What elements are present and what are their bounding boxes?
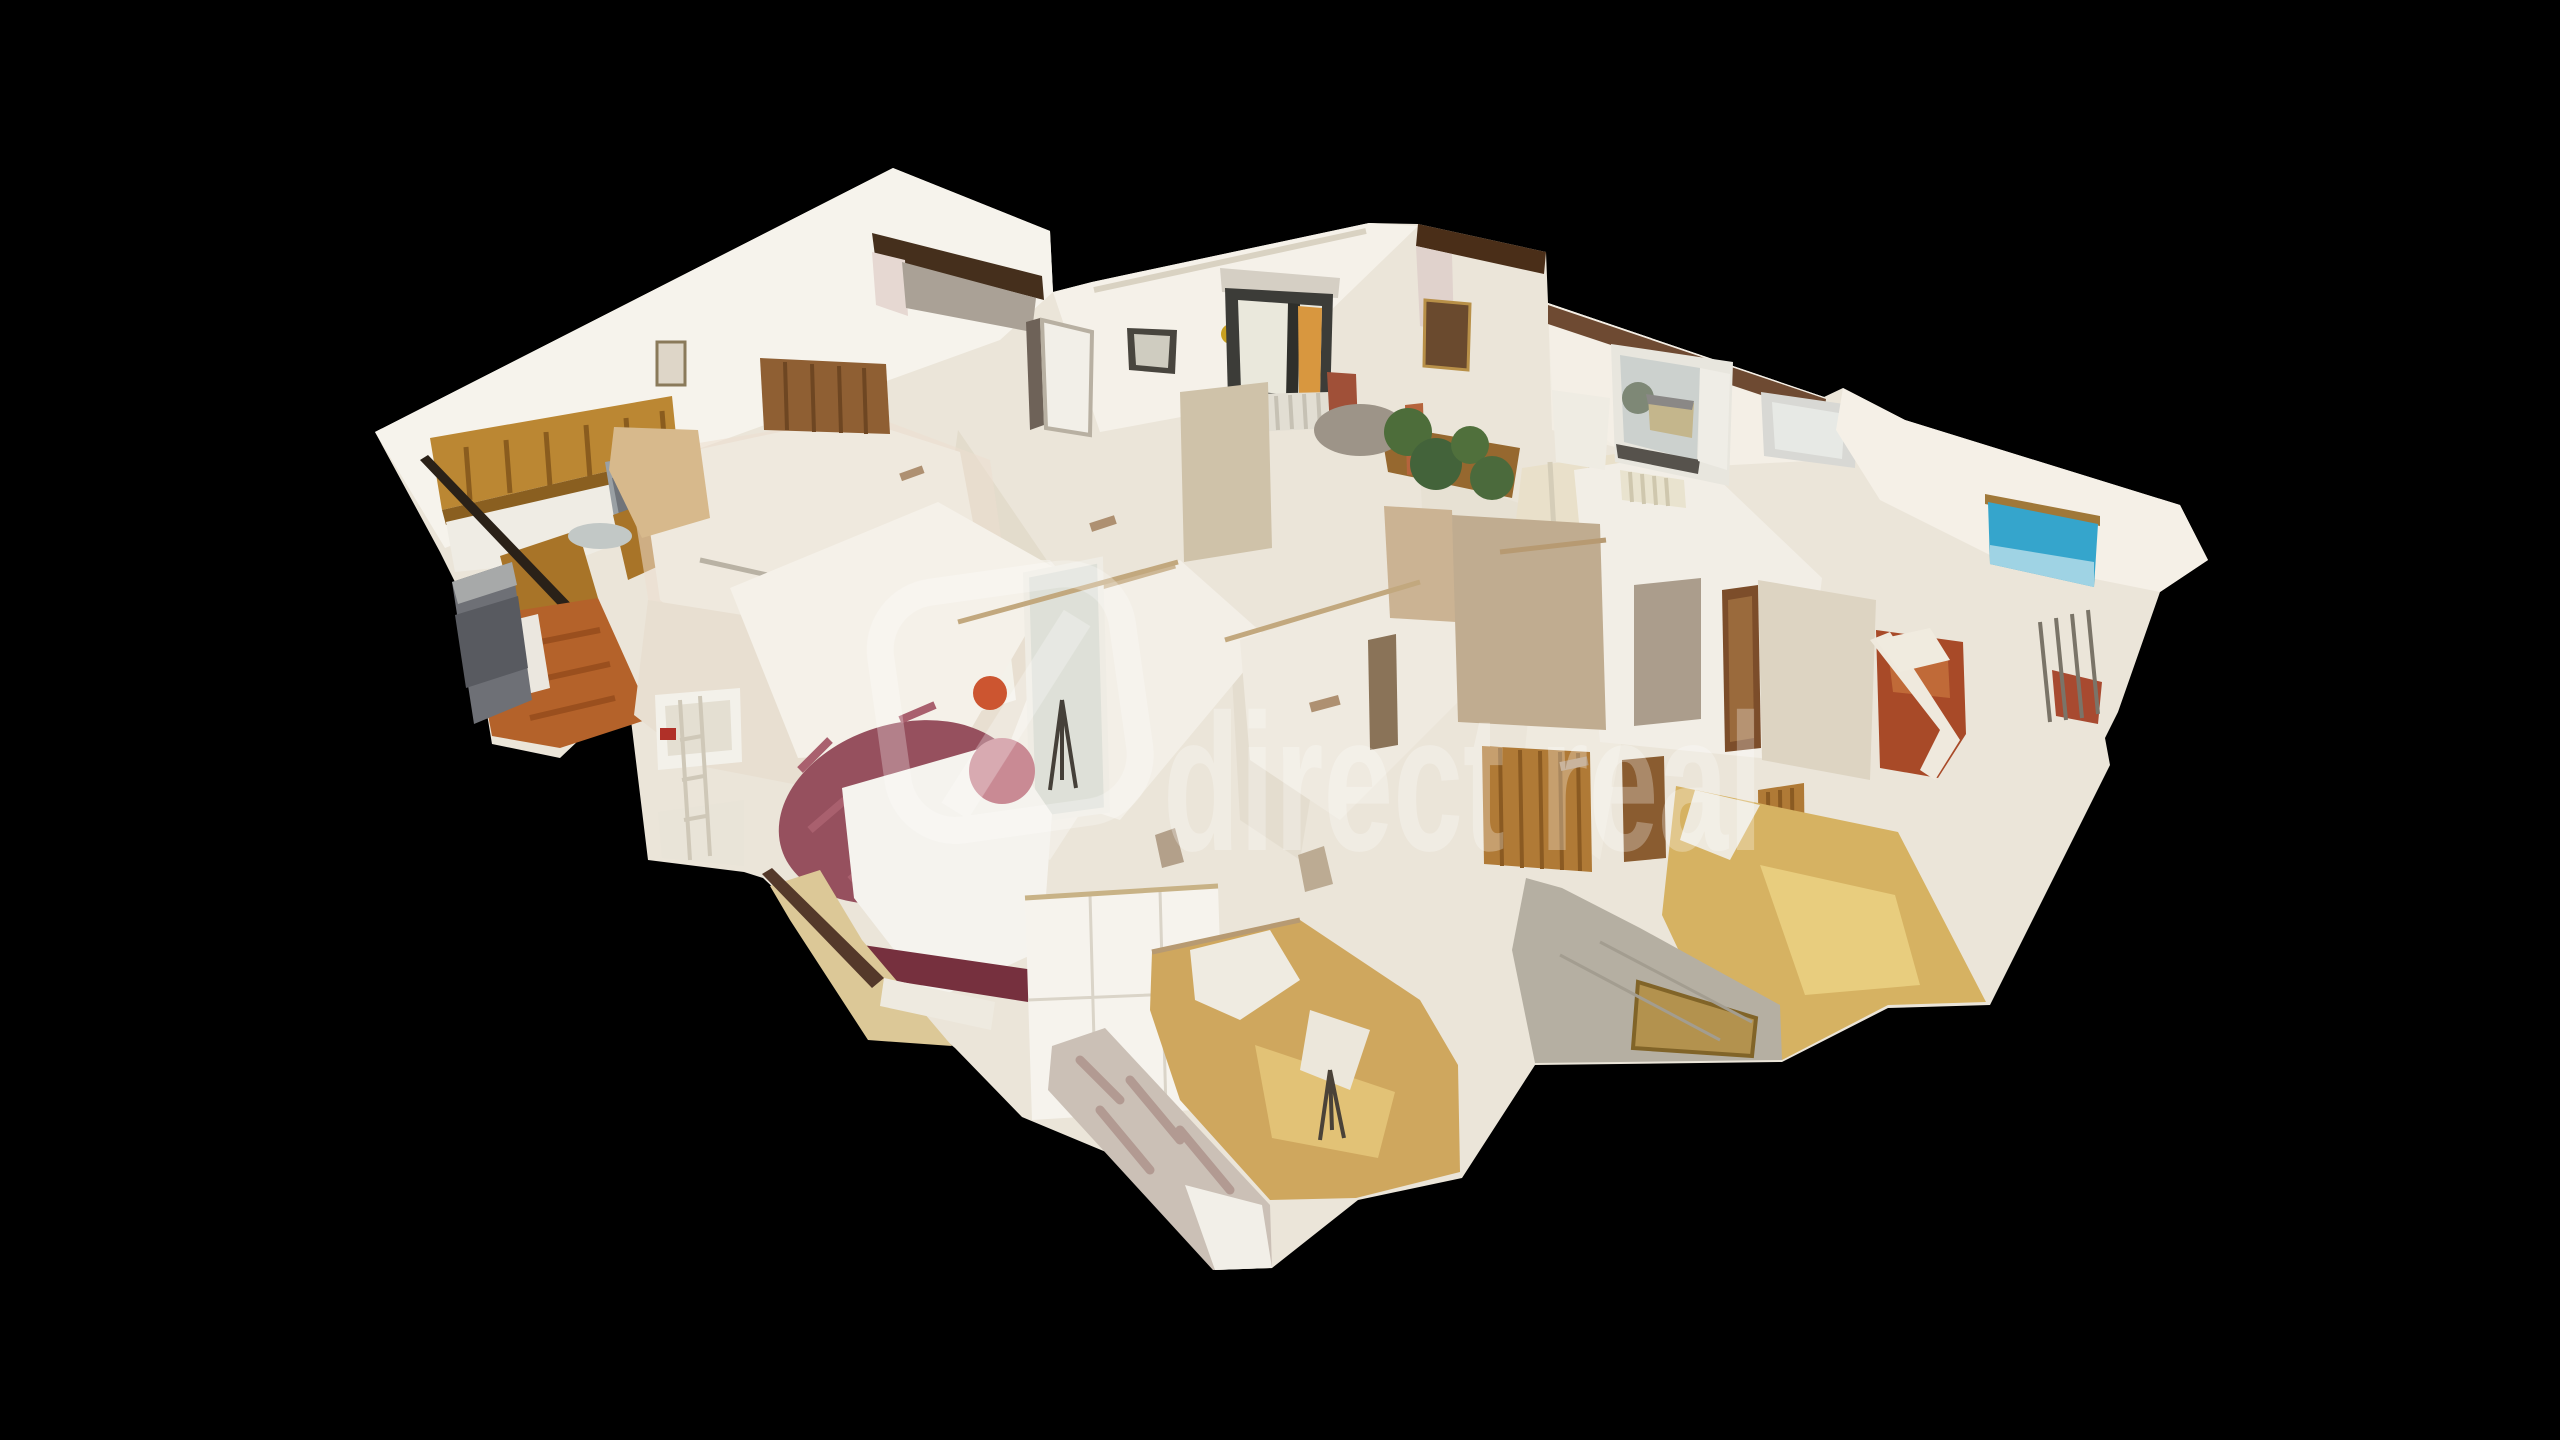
svg-text:direct real: direct real [1163,674,1763,892]
